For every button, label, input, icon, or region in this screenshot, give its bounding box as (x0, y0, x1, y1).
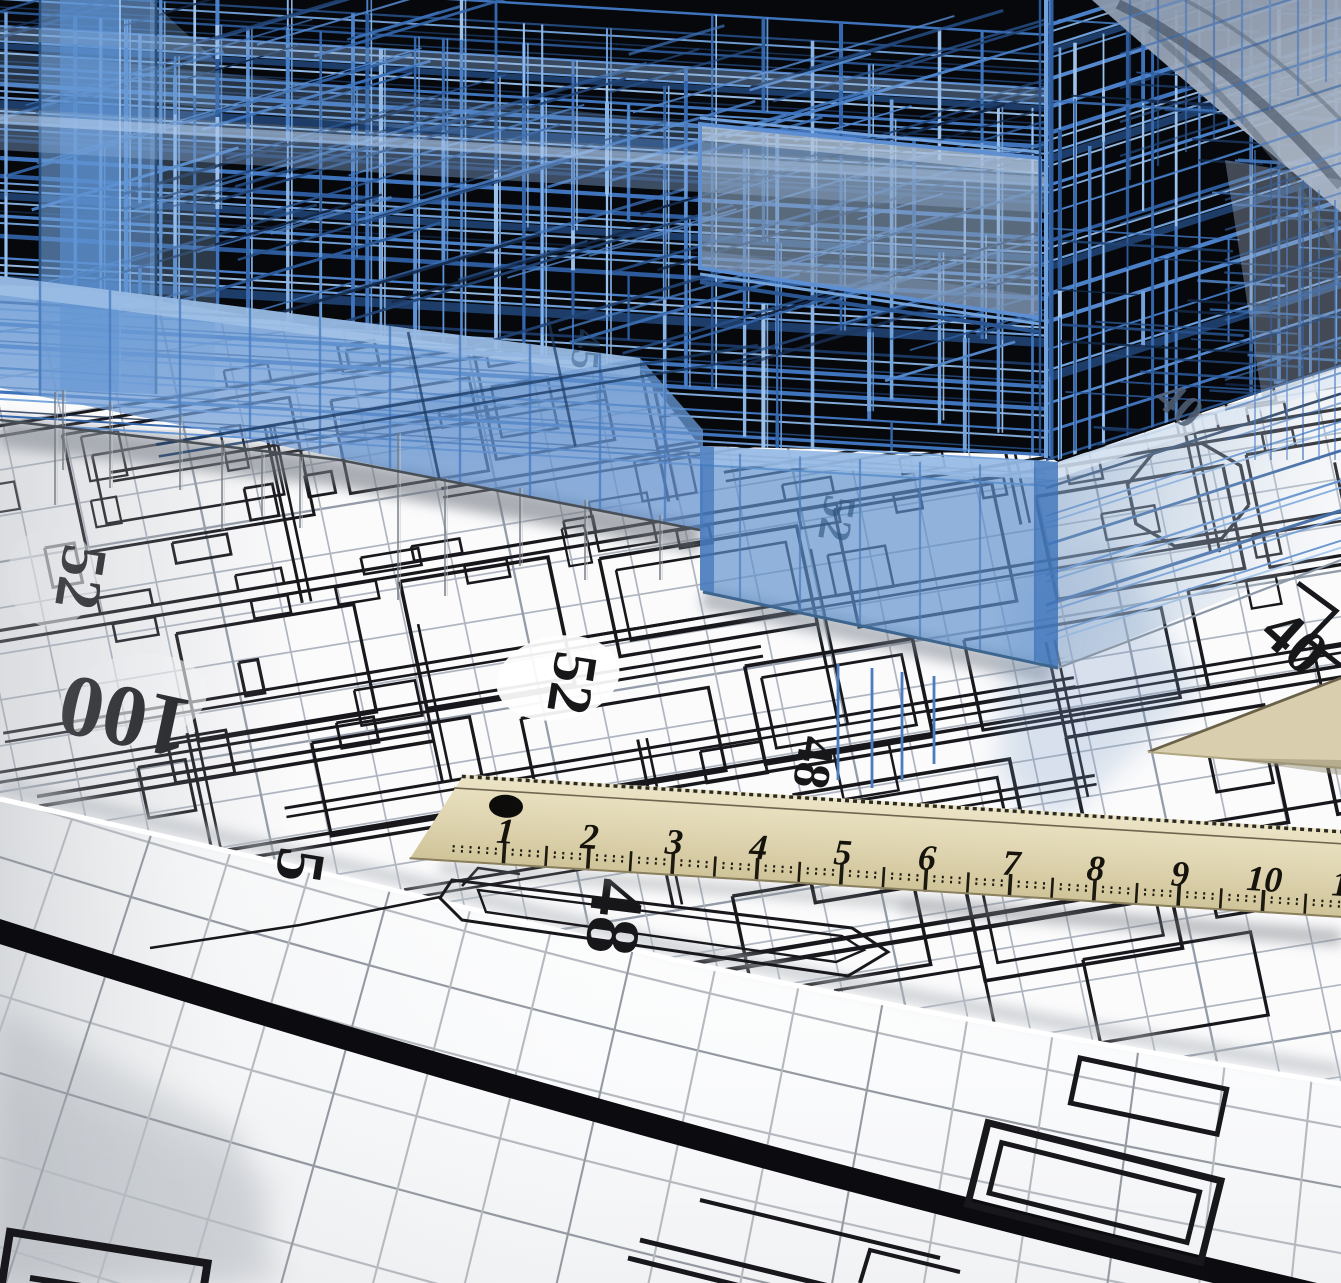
svg-text:2: 2 (579, 816, 600, 857)
svg-text:52: 52 (808, 492, 866, 546)
svg-text:6: 6 (917, 837, 937, 878)
svg-text:1: 1 (495, 811, 515, 852)
svg-text:52: 52 (533, 647, 610, 719)
svg-text:4: 4 (747, 827, 768, 868)
svg-text:11: 11 (1331, 863, 1341, 905)
svg-text:48: 48 (781, 732, 845, 792)
svg-text:5: 5 (833, 832, 853, 873)
svg-text:3: 3 (663, 821, 684, 862)
svg-text:8: 8 (1086, 848, 1106, 889)
svg-text:45: 45 (562, 327, 611, 371)
svg-text:9: 9 (1170, 853, 1190, 894)
svg-text:10: 10 (1245, 858, 1283, 900)
